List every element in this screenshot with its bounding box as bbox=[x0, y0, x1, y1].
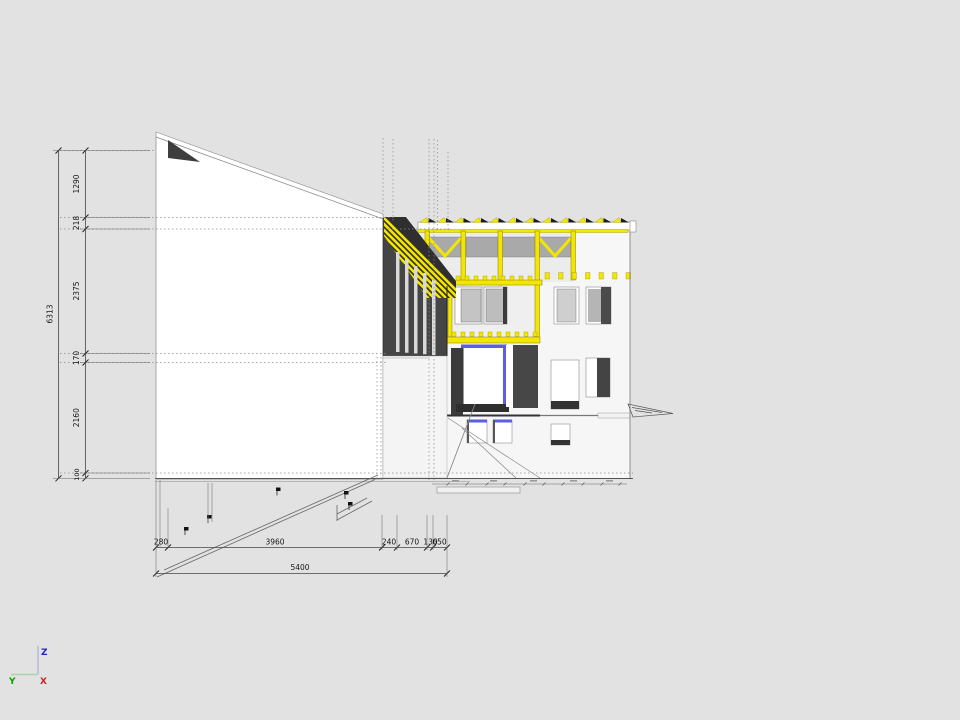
site-diagonals bbox=[157, 475, 378, 577]
side-wall-lower bbox=[383, 356, 447, 478]
z-axis-label: Z bbox=[41, 648, 48, 658]
dark-block-right-of-entry bbox=[513, 345, 538, 408]
dim-label-h5: 650 bbox=[432, 538, 447, 547]
ramp-wedge-arrow bbox=[628, 404, 673, 417]
vertical-dim-extensions bbox=[53, 151, 150, 479]
roof-fascia bbox=[418, 222, 633, 230]
ground-lines bbox=[155, 479, 633, 494]
entry-frame-top bbox=[461, 345, 507, 349]
dim-label-v1: 218 bbox=[72, 216, 81, 231]
dim-label-h0: 280 bbox=[154, 538, 169, 547]
dim-label-h-total: 5400 bbox=[290, 563, 309, 572]
vertical-dim-ticks bbox=[56, 148, 89, 482]
lower-beam bbox=[433, 337, 540, 343]
dim-label-v-total: 6313 bbox=[46, 304, 55, 323]
dim-label-h2: 240 bbox=[382, 538, 397, 547]
dim-label-v3: 170 bbox=[72, 351, 81, 366]
dim-label-v0: 1290 bbox=[72, 174, 81, 193]
y-axis-label: Y bbox=[8, 677, 16, 687]
survey-flags bbox=[184, 488, 353, 536]
entry-opening bbox=[463, 345, 506, 407]
dim-label-h1: 3960 bbox=[265, 538, 284, 547]
cad-viewport[interactable]: 1290 218 2375 170 2160 100 6313 280 3960… bbox=[0, 0, 960, 720]
right-building bbox=[418, 218, 636, 479]
dim-label-h3: 670 bbox=[405, 538, 420, 547]
vertical-dimension-chain: 1290 218 2375 170 2160 100 6313 bbox=[46, 148, 151, 482]
dim-label-v5: 100 bbox=[73, 468, 81, 480]
eave-beam bbox=[418, 230, 628, 233]
roof-fascia-endcap bbox=[630, 221, 636, 232]
dim-label-v4: 2160 bbox=[72, 408, 81, 427]
left-wall-face bbox=[156, 137, 383, 479]
horizontal-dimension-chain: 280 3960 240 670 130 650 5400 bbox=[153, 480, 450, 577]
x-axis-label: X bbox=[40, 677, 47, 687]
left-building bbox=[156, 132, 383, 479]
axis-gizmo: Z Y X bbox=[8, 646, 48, 687]
entry-sill bbox=[456, 404, 509, 412]
dim-label-v2: 2375 bbox=[72, 281, 81, 300]
entry-frame-right bbox=[503, 348, 506, 407]
